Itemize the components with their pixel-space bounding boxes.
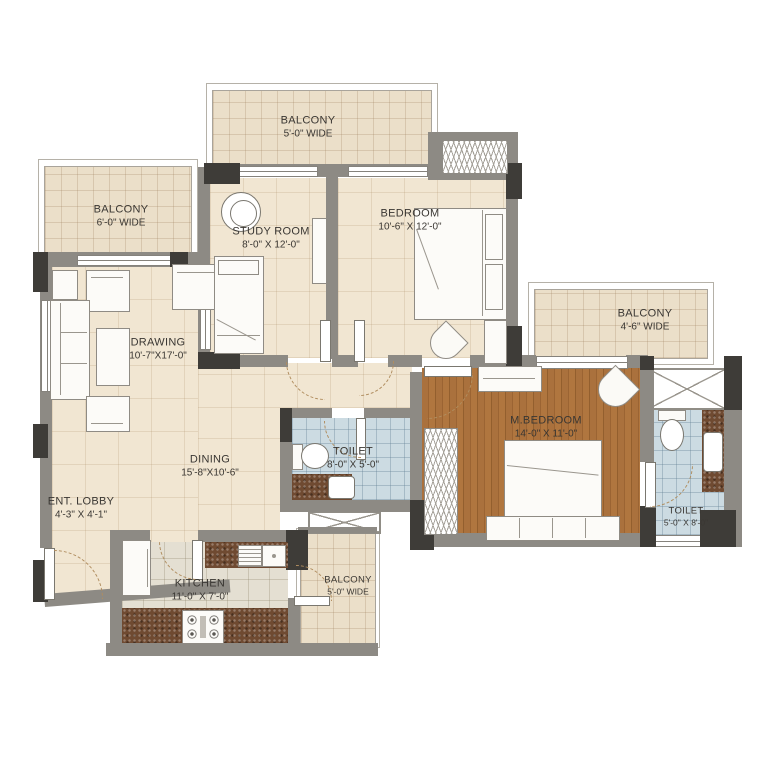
study-desk (312, 218, 327, 284)
wall-toilet-mid-bottom (280, 500, 412, 512)
label-toilet-mid: TOILET8'-0" X 5'-0" (327, 444, 379, 471)
label-balcony-right: BALCONY4'-6" WIDE (618, 306, 673, 333)
label-balcony-top-left: BALCONY6'-0" WIDE (94, 202, 149, 229)
column-bedroom-br (506, 326, 522, 368)
window-toilet-right (654, 535, 702, 547)
label-drawing: DRAWING10'-7"X17'-0" (129, 335, 187, 362)
wall-bottom-outer (106, 643, 378, 656)
kitchen-fridge (122, 540, 151, 596)
bedroom-side-unit (484, 320, 507, 364)
column-toilet-divider (640, 506, 656, 547)
bedroom-wardrobe (442, 140, 508, 174)
study-chair (230, 200, 257, 227)
column-toilet-mid-tl (280, 408, 292, 442)
label-balcony-top: BALCONY5'-0" WIDE (281, 113, 336, 140)
study-door-leaf (320, 320, 331, 362)
armchair-1 (86, 270, 130, 312)
column-mbed-shower (640, 356, 654, 370)
side-table (52, 270, 78, 300)
mbed-mattress (504, 440, 602, 518)
toilet-mid-wc-bowl (301, 443, 329, 469)
column-study-tl (204, 163, 240, 184)
kitchen-sink-basin (262, 545, 286, 567)
label-ent-lobby: ENT. LOBBY4'-3" X 4'-1" (48, 494, 115, 521)
shower-area (648, 368, 726, 410)
label-toilet-right: TOILET5'-0" X 8'-0" (664, 505, 708, 528)
coffee-table (96, 328, 130, 386)
bedroom-door-leaf (354, 320, 365, 362)
column-left-1 (33, 252, 48, 292)
kitchen-sink-drainboard (238, 545, 262, 567)
wall-toilet-right-divider-upper (640, 356, 654, 462)
label-balcony-bottom: BALCONY5'-0" WIDE (324, 574, 372, 597)
armchair-3 (86, 396, 130, 432)
toilet-mid-basin (328, 476, 355, 499)
mbed-dresser (478, 366, 542, 392)
label-kitchen: KITCHEN11'-0" X 7'-0" (172, 576, 229, 603)
study-bed (214, 256, 264, 354)
label-bedroom: BEDROOM10'-6" X 12'-0" (378, 206, 441, 233)
column-study-bl (198, 352, 240, 369)
column-left-2 (33, 424, 48, 458)
wall-kitchen-left (110, 542, 122, 643)
window-bedroom (348, 166, 428, 177)
toilet-right-wc-bowl (660, 419, 684, 451)
toilet-right-basin (703, 432, 723, 472)
sofa (50, 300, 90, 400)
wall-toilet-mid-top-b (364, 408, 410, 418)
entrance-door-leaf (44, 548, 55, 600)
mbed-pillow-row (486, 516, 620, 541)
column-bedroom-tr (506, 163, 522, 199)
wall-kitchen-top-b (198, 530, 300, 542)
column-kitchen-tr (286, 530, 308, 570)
wall-shaft-bottom (298, 527, 377, 533)
label-m-bedroom: M.BEDROOM14'-0" X 11'-0" (510, 413, 582, 440)
floor-plan: BALCONY6'-0" WIDE BALCONY5'-0" WIDE STUD… (0, 0, 768, 768)
mbed-wardrobe (424, 428, 458, 535)
label-study-room: STUDY ROOM8'-0" X 12'-0" (232, 224, 309, 251)
window-balcony-tl (77, 255, 179, 266)
label-dining: DINING15'-8"X10'-6" (181, 452, 239, 479)
column-right-top (724, 356, 742, 410)
kitchen-stove (182, 610, 224, 644)
